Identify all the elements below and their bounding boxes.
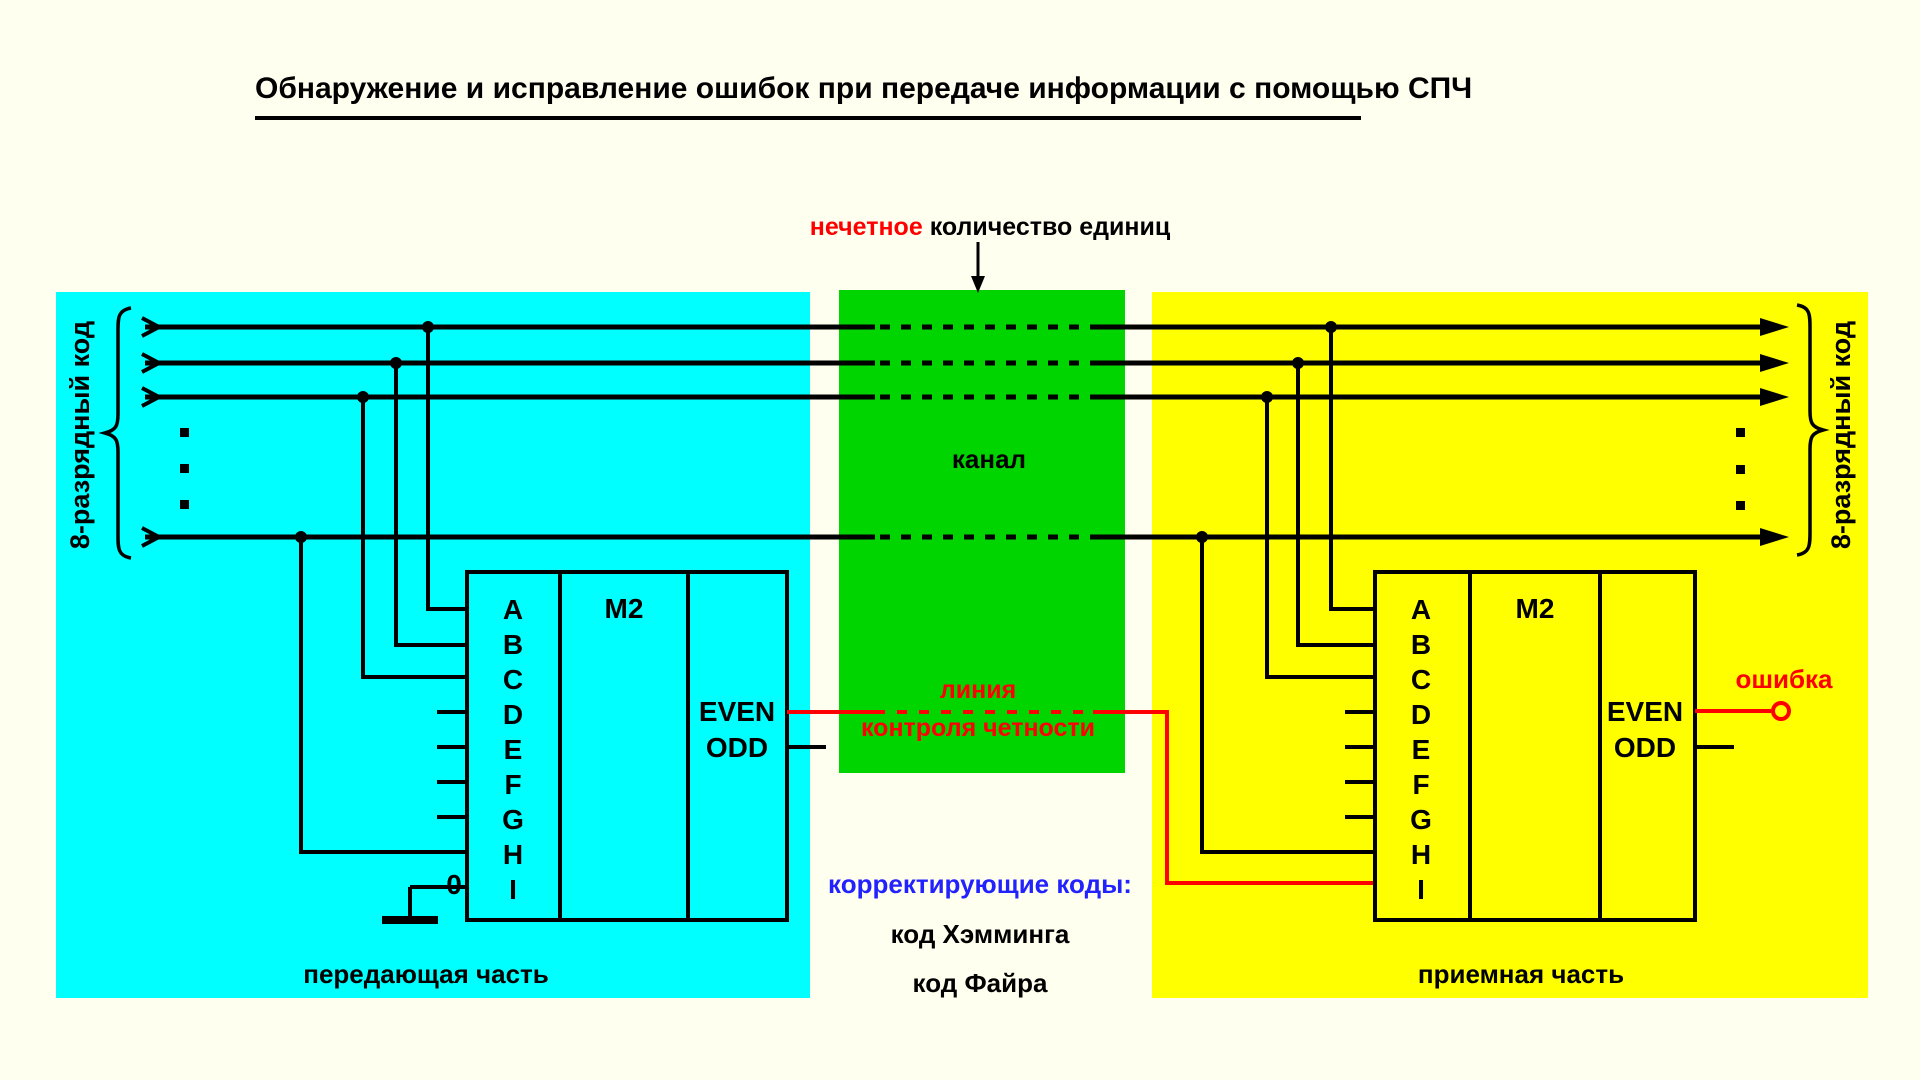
receiver-even-label: EVEN	[1596, 696, 1694, 728]
pin-label: F	[1404, 767, 1438, 802]
transmitter-block-name: M2	[574, 593, 674, 625]
pin-label: B	[496, 627, 530, 662]
left-bus-label: 8-разрядный код	[62, 305, 98, 565]
pin-label: E	[496, 732, 530, 767]
receiver-block-name: M2	[1485, 593, 1585, 625]
pin-label: D	[1404, 697, 1438, 732]
correcting-code-fire: код Файра	[790, 968, 1170, 999]
pin-label: H	[496, 837, 530, 872]
transmitter-odd-label: ODD	[688, 732, 786, 764]
pin-label: E	[1404, 732, 1438, 767]
odd-count-annotation: нечетное количество единиц	[740, 213, 1240, 242]
pin-label: G	[496, 802, 530, 837]
parity-line-label-2: контроля четности	[828, 714, 1128, 743]
pin-label: H	[1404, 837, 1438, 872]
pin-label: C	[496, 662, 530, 697]
correcting-codes-heading: корректирующие коды:	[790, 869, 1170, 900]
receiver-region	[1152, 292, 1868, 998]
transmitter-zero-input-label: 0	[440, 869, 468, 901]
pin-label: A	[496, 592, 530, 627]
odd-count-rest: количество единиц	[930, 213, 1171, 241]
pin-label: B	[1404, 627, 1438, 662]
transmitter-even-label: EVEN	[688, 696, 786, 728]
diagram-stage: Обнаружение и исправление ошибок при пер…	[0, 0, 1920, 1080]
pin-label: F	[496, 767, 530, 802]
receiver-odd-label: ODD	[1596, 732, 1694, 764]
page-title: Обнаружение и исправление ошибок при пер…	[255, 72, 1361, 120]
pin-label: A	[1404, 592, 1438, 627]
transmitter-pin-list: A B C D E F G H I	[496, 592, 530, 907]
transmitter-caption: передающая часть	[276, 959, 576, 990]
pin-label: I	[496, 872, 530, 907]
receiver-pin-list: A B C D E F G H I	[1404, 592, 1438, 907]
channel-input-arrow-icon	[971, 242, 985, 293]
pin-label: G	[1404, 802, 1438, 837]
transmitter-region	[56, 292, 810, 998]
pin-label: D	[496, 697, 530, 732]
parity-line-label-1: линия	[878, 676, 1078, 705]
error-label: ошибка	[1714, 664, 1854, 695]
correcting-code-hamming: код Хэмминга	[790, 919, 1170, 950]
pin-label: I	[1404, 872, 1438, 907]
channel-label: канал	[926, 444, 1052, 475]
receiver-caption: приемная часть	[1371, 959, 1671, 990]
pin-label: C	[1404, 662, 1438, 697]
right-bus-label: 8-разрядный код	[1823, 305, 1859, 565]
odd-count-highlight: нечетное	[810, 213, 923, 241]
page-title-text: Обнаружение и исправление ошибок при пер…	[255, 72, 1472, 105]
